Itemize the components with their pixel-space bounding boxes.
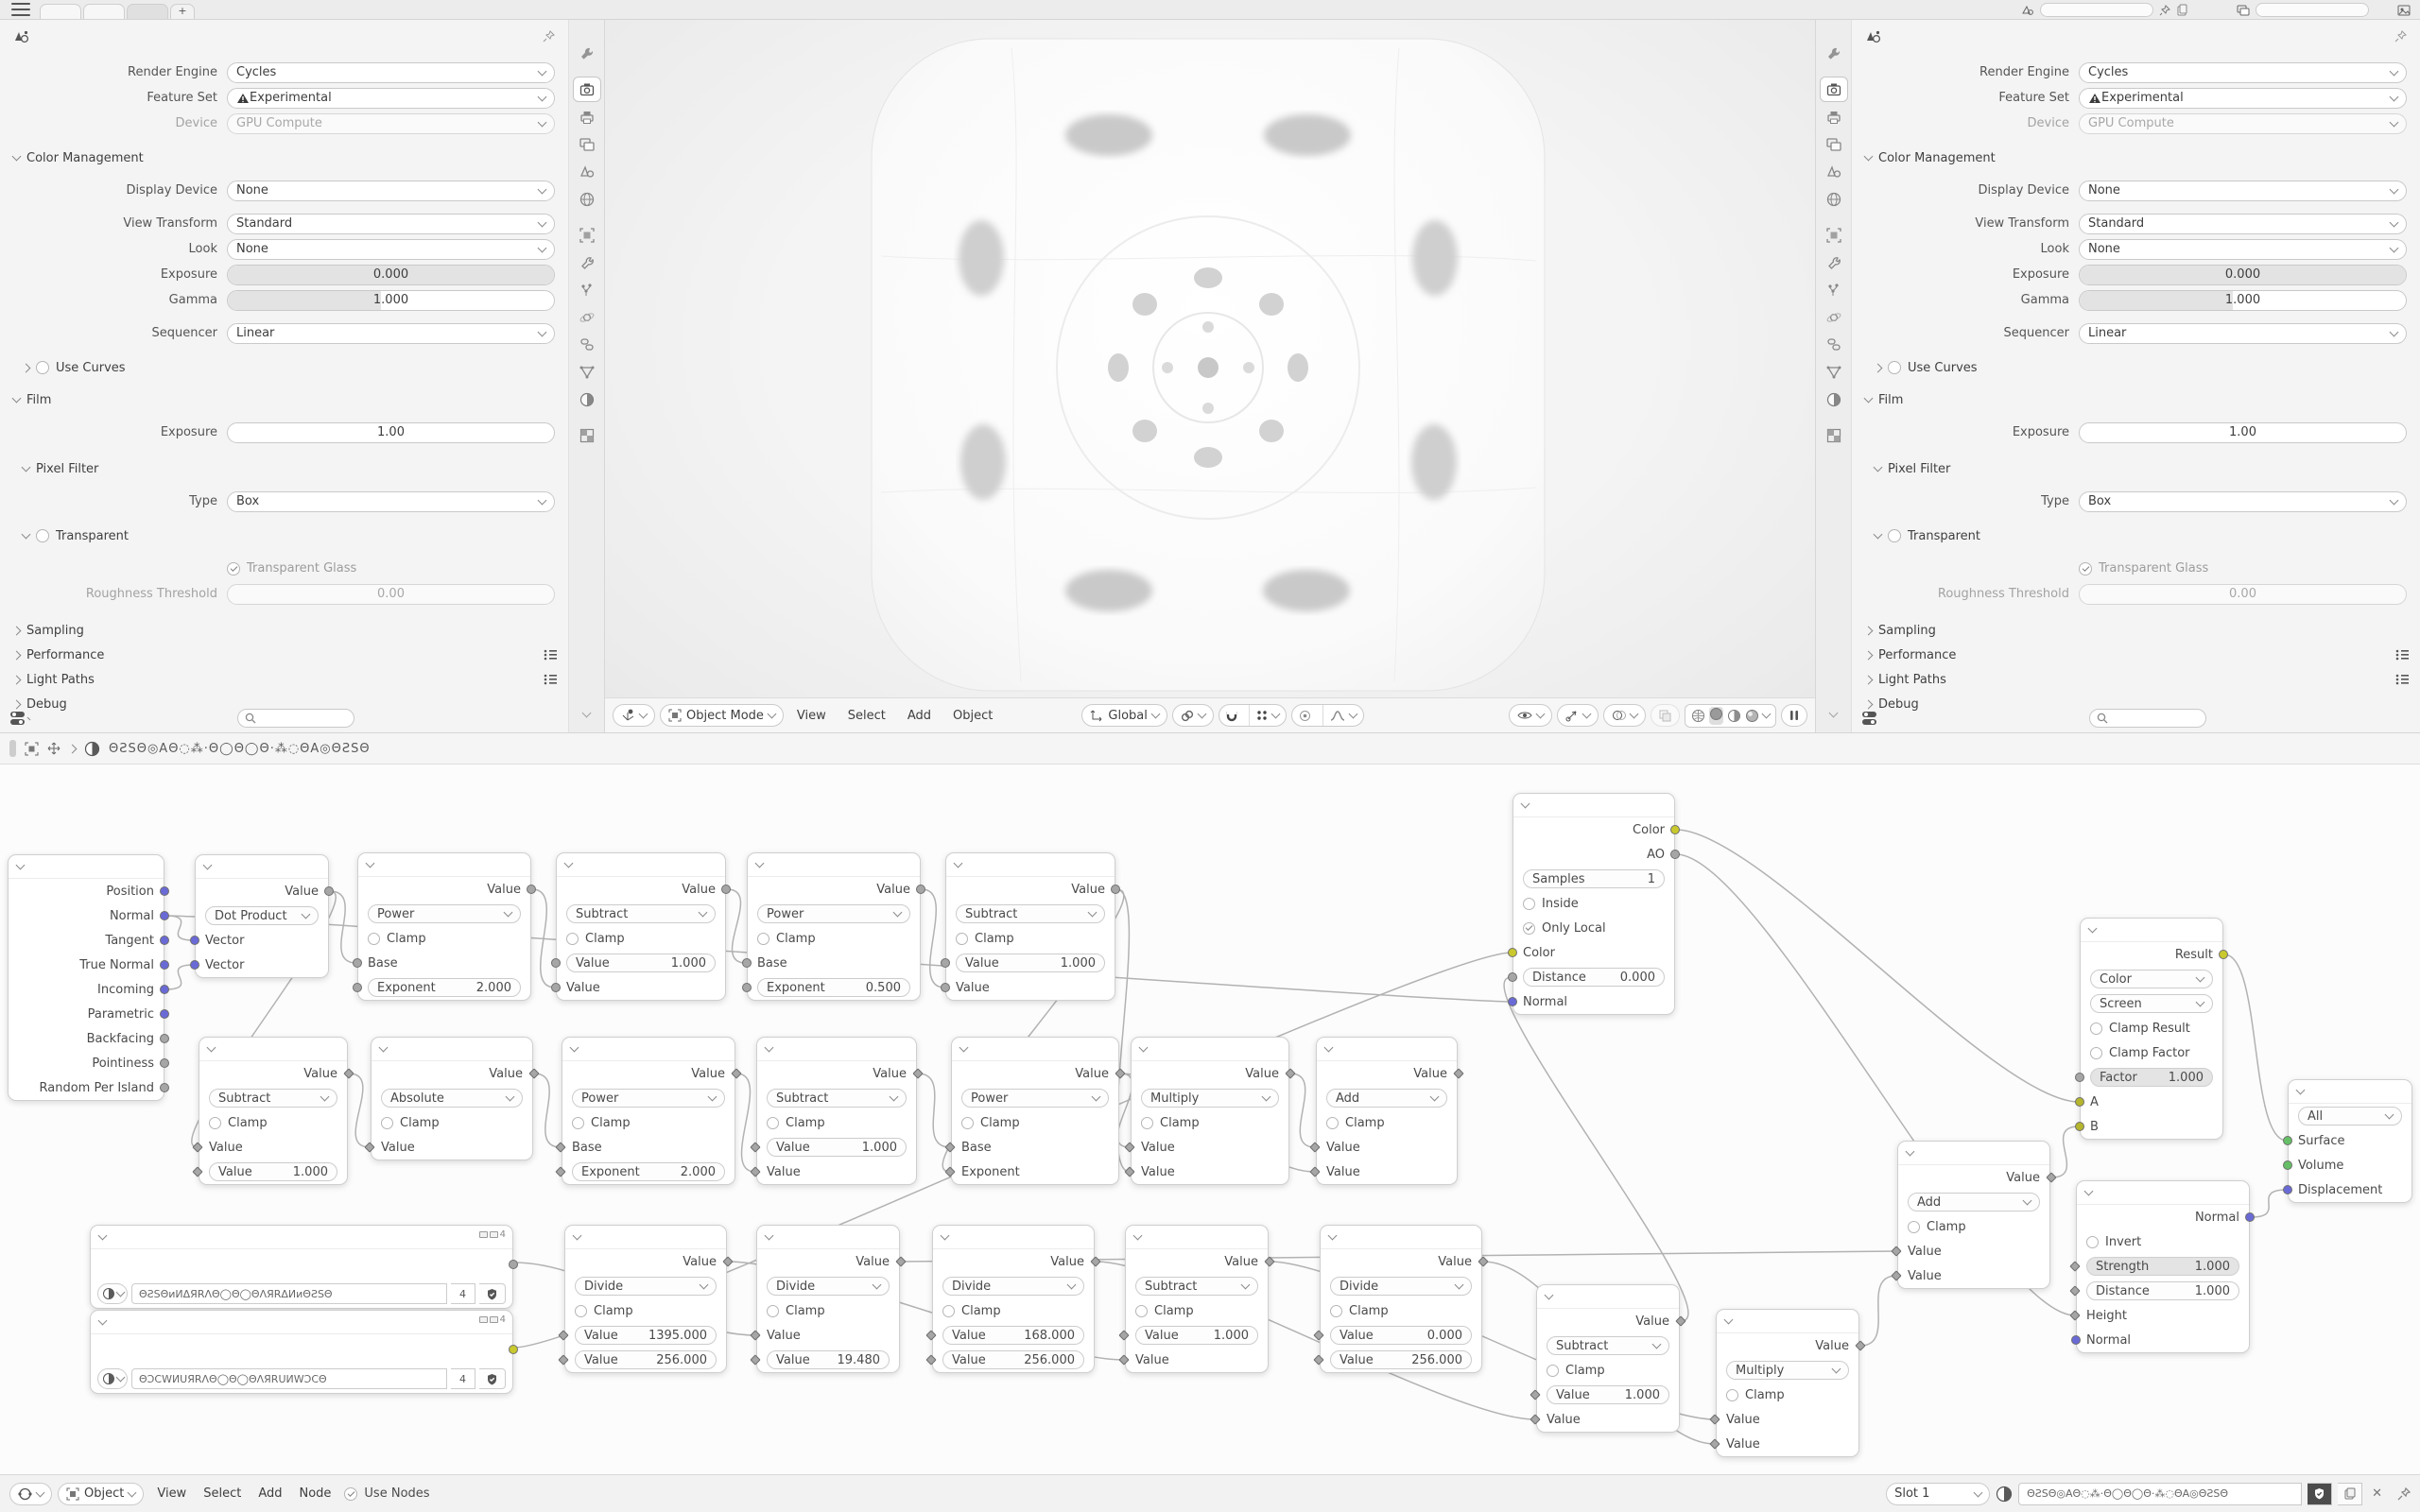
socket[interactable]: [941, 958, 950, 968]
look-select[interactable]: None: [2079, 239, 2407, 260]
filter-type-select[interactable]: Box: [2079, 491, 2407, 512]
collapse-icon[interactable]: [1545, 1291, 1554, 1300]
proportional-editing-toggle[interactable]: [1291, 704, 1364, 727]
sequencer-select[interactable]: Linear: [227, 323, 555, 344]
node-outn[interactable]: AllSurfaceVolumeDisplacement: [2288, 1079, 2412, 1203]
node-dot[interactable]: ValueDot ProductVectorVector: [195, 854, 329, 978]
node-pow4[interactable]: ValuePowerClampBaseExponent: [951, 1037, 1119, 1185]
node-mix[interactable]: ResultColorScreenClamp ResultClamp Facto…: [2080, 918, 2223, 1140]
operation-select[interactable]: Divide: [1330, 1277, 1472, 1296]
properties-tab-texture-icon[interactable]: [1820, 422, 1848, 448]
collapse-icon[interactable]: [2296, 1086, 2306, 1095]
properties-tab-modifiers-icon[interactable]: [1820, 249, 1848, 275]
image-browse-button[interactable]: [97, 1368, 128, 1389]
region-options-icon[interactable]: [1820, 701, 1848, 727]
fake-user-button[interactable]: [479, 1368, 506, 1389]
operation-select[interactable]: Absolute: [381, 1089, 523, 1108]
socket[interactable]: [190, 960, 199, 970]
operation-select[interactable]: Subtract: [1135, 1277, 1258, 1296]
checkbox[interactable]: [1523, 898, 1535, 910]
socket[interactable]: [160, 911, 169, 920]
checkbox[interactable]: [1726, 1389, 1738, 1401]
socket[interactable]: [527, 885, 536, 894]
collapse-icon[interactable]: [564, 859, 574, 868]
collapse-icon[interactable]: [1139, 1043, 1149, 1053]
feature-set-select[interactable]: Experimental: [227, 88, 555, 109]
filter-icon[interactable]: [1861, 710, 1884, 727]
value-field[interactable]: Value1.000: [1135, 1326, 1258, 1345]
properties-tab-scene-icon[interactable]: [1820, 159, 1848, 184]
fake-user-button[interactable]: [2308, 1483, 2332, 1505]
node-bump[interactable]: NormalInvertStrength1.000Distance1.000He…: [2076, 1180, 2250, 1353]
checkbox[interactable]: [961, 1117, 974, 1129]
filter-type-select[interactable]: Box: [227, 491, 555, 512]
node-sub6[interactable]: ValueSubtractClampValue1.000Value: [1536, 1284, 1680, 1433]
user-count[interactable]: 4: [451, 1283, 475, 1304]
collapse-icon[interactable]: [1521, 799, 1530, 809]
operation-select[interactable]: Power: [961, 1089, 1109, 1108]
section-film[interactable]: Film: [0, 387, 568, 412]
section-performance[interactable]: Performance: [1852, 643, 2420, 667]
section-transparent[interactable]: Transparent: [0, 524, 568, 548]
menu-node[interactable]: Node: [291, 1486, 338, 1501]
value-field[interactable]: Strength1.000: [2086, 1257, 2239, 1276]
value-field[interactable]: Exponent2.000: [368, 978, 521, 997]
node-abs1[interactable]: ValueAbsoluteClampValue: [371, 1037, 533, 1160]
gamma-slider[interactable]: 1.000: [2079, 290, 2407, 311]
scene-selector[interactable]: [2040, 3, 2153, 17]
exposure-slider[interactable]: 0.000: [227, 265, 555, 285]
section-sampling[interactable]: Sampling: [1852, 618, 2420, 643]
value-field[interactable]: Exponent2.000: [572, 1162, 725, 1181]
node-mult2[interactable]: ValueMultiplyClampValueValue: [1716, 1309, 1859, 1457]
image-name-field[interactable]: ΘƧSΘͷͶΔЯRΛΘ◯Θ◯ΘΛЯRΔͶͷΘƧSΘ: [131, 1283, 447, 1304]
collapse-icon[interactable]: [16, 861, 26, 870]
slot-select[interactable]: Slot 1: [1886, 1483, 1990, 1505]
socket[interactable]: [2075, 1097, 2084, 1107]
collapse-icon[interactable]: [1133, 1231, 1143, 1241]
checkbox[interactable]: [2090, 1022, 2102, 1035]
viewport-3d[interactable]: Object Mode View Select Add Object Globa…: [605, 20, 1815, 732]
snap-target-button[interactable]: [1172, 704, 1214, 727]
checkbox[interactable]: [566, 933, 579, 945]
menu-view[interactable]: View: [788, 709, 835, 723]
shader-type-select[interactable]: Object: [58, 1483, 144, 1505]
socket[interactable]: [190, 936, 199, 945]
node-pow1[interactable]: ValuePowerClampBaseExponent2.000: [357, 852, 531, 1001]
properties-tab-render-icon[interactable]: [1820, 77, 1848, 102]
properties-tab-physics-icon[interactable]: [573, 304, 601, 330]
operation-select[interactable]: Subtract: [767, 1089, 907, 1108]
value-field[interactable]: Value1.000: [209, 1162, 337, 1181]
roughness-threshold-field[interactable]: 0.00: [227, 584, 555, 605]
collapse-icon[interactable]: [203, 861, 213, 870]
socket[interactable]: [353, 983, 362, 992]
socket[interactable]: [160, 1009, 169, 1019]
overlays-button[interactable]: [1603, 704, 1646, 727]
xray-toggle[interactable]: [1651, 704, 1680, 727]
socket[interactable]: [1508, 997, 1517, 1006]
checkbox[interactable]: [1908, 1221, 1920, 1233]
render-result-icon[interactable]: [2397, 5, 2411, 16]
checkbox[interactable]: [381, 1117, 393, 1129]
socket[interactable]: [160, 960, 169, 970]
gamma-slider[interactable]: 1.000: [227, 290, 555, 311]
menu-icon[interactable]: [11, 3, 30, 16]
checkbox[interactable]: [767, 1117, 779, 1129]
object-icon: [66, 1487, 79, 1501]
socket[interactable]: [2283, 1160, 2292, 1170]
socket[interactable]: [2071, 1335, 2081, 1345]
use-nodes-checkbox[interactable]: Use Nodes: [344, 1486, 429, 1501]
transparent-glass-checkbox[interactable]: Transparent Glass: [227, 561, 356, 576]
roughness-threshold-field[interactable]: 0.00: [2079, 584, 2407, 605]
operation-select[interactable]: All: [2298, 1107, 2402, 1125]
socket[interactable]: [742, 983, 752, 992]
checkbox[interactable]: [2090, 1047, 2102, 1059]
properties-tab-material-icon[interactable]: [1820, 387, 1848, 412]
checkbox[interactable]: [209, 1117, 221, 1129]
mode-select[interactable]: Object Mode: [660, 704, 784, 727]
value-field[interactable]: Exponent0.500: [757, 978, 910, 997]
region-handle[interactable]: [9, 740, 16, 757]
operation-select[interactable]: Dot Product: [205, 906, 319, 925]
checkbox[interactable]: [1135, 1305, 1148, 1317]
region-options-icon[interactable]: [573, 701, 601, 727]
section-light-paths[interactable]: Light Paths: [1852, 667, 2420, 692]
workspace-tab[interactable]: [40, 4, 81, 19]
operation-select[interactable]: Subtract: [956, 904, 1105, 923]
socket[interactable]: [2283, 1185, 2292, 1194]
pin-icon[interactable]: [2394, 30, 2407, 43]
socket[interactable]: [2075, 1073, 2084, 1082]
collapse-icon[interactable]: [1324, 1043, 1334, 1053]
operation-select[interactable]: Screen: [2090, 994, 2213, 1013]
checkbox[interactable]: [942, 1305, 955, 1317]
collapse-icon[interactable]: [765, 1231, 774, 1241]
checkbox[interactable]: [572, 1117, 584, 1129]
checkbox[interactable]: [1547, 1365, 1559, 1377]
transparent-glass-checkbox[interactable]: Transparent Glass: [2079, 561, 2208, 576]
properties-tab-particles-icon[interactable]: [573, 277, 601, 302]
properties-tab-world-icon[interactable]: [1820, 186, 1848, 212]
value-field[interactable]: Value1.000: [767, 1138, 907, 1157]
shading-mode-switch[interactable]: [1685, 704, 1776, 728]
section-pixel-filter[interactable]: Pixel Filter: [0, 456, 568, 481]
collapse-icon[interactable]: [573, 1231, 582, 1241]
film-exposure-field[interactable]: 1.00: [227, 422, 555, 443]
node-div3[interactable]: ValueDivideClampValue168.000Value256.000: [932, 1225, 1095, 1373]
view-transform-select[interactable]: Standard: [2079, 214, 2407, 234]
view-transform-select[interactable]: Standard: [227, 214, 555, 234]
checkbox[interactable]: [1326, 1117, 1339, 1129]
socket[interactable]: [324, 886, 334, 896]
render-engine-select[interactable]: Cycles: [227, 62, 555, 83]
value-field[interactable]: Value256.000: [1330, 1350, 1472, 1369]
socket[interactable]: [2245, 1212, 2255, 1222]
operation-select[interactable]: Subtract: [1547, 1336, 1669, 1355]
collapse-icon[interactable]: [1724, 1315, 1734, 1325]
fake-user-button[interactable]: [479, 1283, 506, 1304]
collapse-icon[interactable]: [1906, 1147, 1915, 1157]
operation-select[interactable]: Multiply: [1141, 1089, 1279, 1108]
add-workspace-button[interactable]: +: [170, 4, 195, 19]
value-field[interactable]: Value1.000: [956, 954, 1105, 972]
collapse-icon[interactable]: [954, 859, 963, 868]
collapse-icon[interactable]: [755, 859, 765, 868]
transparent-checkbox[interactable]: [36, 529, 49, 542]
pause-button[interactable]: [1781, 704, 1807, 727]
node-geometry[interactable]: PositionNormalTangentTrue NormalIncoming…: [8, 854, 164, 1101]
node-sub5[interactable]: ValueSubtractClampValue1.000Value: [1125, 1225, 1269, 1373]
operation-select[interactable]: Add: [1908, 1193, 2040, 1211]
socket[interactable]: [509, 1260, 518, 1269]
section-use-curves[interactable]: Use Curves: [0, 355, 568, 380]
properties-tab-tool-icon[interactable]: [573, 41, 601, 66]
value-field[interactable]: Value1.000: [566, 954, 716, 972]
socket[interactable]: [1508, 972, 1517, 982]
film-exposure-field[interactable]: 1.00: [2079, 422, 2407, 443]
properties-tab-output-icon[interactable]: [573, 104, 601, 129]
orientation-select[interactable]: Global: [1081, 704, 1167, 727]
socket[interactable]: [1670, 825, 1680, 834]
material-name-field[interactable]: ΘƧSΘ◎AΘ◌⁂·Θ◯Θ◯Θ·⁂◌ΘA◎ΘƧSΘ: [2018, 1483, 2302, 1505]
properties-tab-physics-icon[interactable]: [1820, 304, 1848, 330]
operation-select[interactable]: Power: [572, 1089, 725, 1108]
value-field[interactable]: Samples1: [1523, 869, 1665, 888]
section-sampling[interactable]: Sampling: [0, 618, 568, 643]
workspace-tab[interactable]: [83, 4, 125, 19]
pin-icon[interactable]: [543, 30, 555, 43]
properties-tab-tool-icon[interactable]: [1820, 41, 1848, 66]
node-sub4[interactable]: ValueSubtractClampValue1.000Value: [756, 1037, 917, 1185]
operation-select[interactable]: Add: [1326, 1089, 1447, 1108]
object-mode-icon: [668, 709, 682, 722]
operation-select[interactable]: Divide: [942, 1277, 1084, 1296]
socket[interactable]: [160, 936, 169, 945]
value-field[interactable]: Value256.000: [942, 1350, 1084, 1369]
menu-select[interactable]: Select: [196, 1486, 249, 1501]
node-div4[interactable]: ValueDivideClampValue0.000Value256.000: [1320, 1225, 1482, 1373]
collapse-icon[interactable]: [2084, 1187, 2094, 1196]
socket[interactable]: [160, 1034, 169, 1043]
use-curves-checkbox[interactable]: [1888, 361, 1901, 374]
section-use-curves[interactable]: Use Curves: [1852, 355, 2420, 380]
collapse-icon[interactable]: [959, 1043, 969, 1053]
checkbox[interactable]: [1330, 1305, 1342, 1317]
node-div2[interactable]: ValueDivideClampValueValue19.480: [756, 1225, 900, 1373]
properties-tab-view-layer-icon[interactable]: [1820, 131, 1848, 157]
collapse-icon[interactable]: [1328, 1231, 1338, 1241]
socket[interactable]: [160, 886, 169, 896]
value-field[interactable]: Distance0.000: [1523, 968, 1665, 987]
properties-tab-data-icon[interactable]: [1820, 359, 1848, 385]
properties-tab-data-icon[interactable]: [573, 359, 601, 385]
pin-icon[interactable]: [2397, 1487, 2411, 1501]
checkbox[interactable]: [1141, 1117, 1153, 1129]
value-field[interactable]: Factor1.000: [2090, 1068, 2213, 1087]
exposure-slider[interactable]: 0.000: [2079, 265, 2407, 285]
value-field[interactable]: Value1.000: [1547, 1385, 1669, 1404]
view-layer-selector[interactable]: [2256, 3, 2369, 17]
socket[interactable]: [721, 885, 731, 894]
checkbox[interactable]: [368, 933, 380, 945]
image-browse-button[interactable]: [97, 1283, 128, 1304]
value-field[interactable]: Value168.000: [942, 1326, 1084, 1345]
value-field[interactable]: Distance1.000: [2086, 1281, 2239, 1300]
menu-add[interactable]: Add: [251, 1486, 289, 1501]
node-img1[interactable]: 4ΘƧSΘͷͶΔЯRΛΘ◯Θ◯ΘΛЯRΔͶͷΘƧSΘ4: [90, 1225, 513, 1309]
section-pixel-filter[interactable]: Pixel Filter: [1852, 456, 2420, 481]
display-device-select[interactable]: None: [2079, 180, 2407, 201]
socket[interactable]: [353, 958, 362, 968]
gizmo-button[interactable]: [1557, 704, 1599, 727]
socket[interactable]: [916, 885, 925, 894]
checkbox[interactable]: [767, 1305, 779, 1317]
node-ao[interactable]: ColorAOSamples1InsideOnly LocalColorDist…: [1512, 793, 1675, 1015]
properties-tab-constraints-icon[interactable]: [1820, 332, 1848, 357]
output-label: Value: [1075, 1067, 1109, 1081]
socket[interactable]: [1111, 885, 1120, 894]
socket[interactable]: [551, 983, 561, 992]
properties-tab-particles-icon[interactable]: [1820, 277, 1848, 302]
socket[interactable]: [160, 985, 169, 994]
operation-select[interactable]: Color: [2090, 970, 2213, 988]
node-sub2[interactable]: ValueSubtractClampValue1.000Value: [945, 852, 1115, 1001]
properties-tab-constraints-icon[interactable]: [573, 332, 601, 357]
node-sub3[interactable]: ValueSubtractClampValueValue1.000: [199, 1037, 348, 1185]
collapse-icon[interactable]: [765, 1043, 774, 1053]
input-label: Surface: [2298, 1134, 2345, 1148]
socket[interactable]: [2219, 950, 2228, 959]
menu-object[interactable]: Object: [944, 709, 1001, 723]
section-transparent[interactable]: Transparent: [1852, 524, 2420, 548]
user-count[interactable]: 4: [451, 1368, 475, 1389]
editor-type-button[interactable]: [613, 704, 655, 727]
node-div1[interactable]: ValueDivideClampValue1395.000Value256.00…: [564, 1225, 727, 1373]
node-add1[interactable]: ValueAddClampValueValue: [1316, 1037, 1458, 1185]
device-select[interactable]: GPU Compute: [227, 113, 555, 134]
image-name-field[interactable]: ΘƆCWͶUЯRΛΘ◯Θ◯ΘΛЯRUͶWƆCΘ: [131, 1368, 447, 1389]
socket[interactable]: [941, 983, 950, 992]
transparent-checkbox[interactable]: [1888, 529, 1901, 542]
socket[interactable]: [1508, 948, 1517, 957]
menu-select[interactable]: Select: [839, 709, 894, 723]
properties-tab-material-icon[interactable]: [573, 387, 601, 412]
socket[interactable]: [1670, 850, 1680, 859]
section-color-management[interactable]: Color Management: [1852, 146, 2420, 170]
properties-tab-render-icon[interactable]: [573, 77, 601, 102]
collapse-icon[interactable]: [570, 1043, 579, 1053]
value-field[interactable]: Value0.000: [1330, 1326, 1472, 1345]
operation-select[interactable]: Multiply: [1726, 1361, 1849, 1380]
collapse-icon[interactable]: [379, 1043, 389, 1053]
render-engine-select[interactable]: Cycles: [2079, 62, 2407, 83]
checkbox[interactable]: [575, 1305, 587, 1317]
properties-tab-modifiers-icon[interactable]: [573, 249, 601, 275]
socket[interactable]: [2075, 1122, 2084, 1131]
workspace-tab-active[interactable]: [127, 4, 168, 19]
operation-select[interactable]: Power: [757, 904, 910, 923]
socket[interactable]: [2283, 1136, 2292, 1145]
socket[interactable]: [160, 1058, 169, 1068]
section-color-management[interactable]: Color Management: [0, 146, 568, 170]
node-canvas[interactable]: PositionNormalTangentTrue NormalIncoming…: [0, 765, 2420, 1474]
properties-tab-texture-icon[interactable]: [573, 422, 601, 448]
checkbox[interactable]: [1523, 922, 1535, 935]
node-img2[interactable]: 4ΘƆCWͶUЯRΛΘ◯Θ◯ΘΛЯRUͶWƆCΘ4: [90, 1310, 513, 1394]
unlink-button[interactable]: ✕: [2368, 1486, 2386, 1501]
menu-add[interactable]: Add: [899, 709, 940, 723]
properties-tab-object-icon[interactable]: [573, 222, 601, 248]
snap-toggle[interactable]: [1219, 704, 1287, 727]
editor-type-button[interactable]: [9, 1483, 52, 1505]
look-select[interactable]: None: [227, 239, 555, 260]
node-mult1[interactable]: ValueMultiplyClampValueValue: [1131, 1037, 1289, 1185]
collapse-icon[interactable]: [366, 859, 375, 868]
collapse-icon[interactable]: [98, 1316, 108, 1326]
collapse-icon[interactable]: [2088, 924, 2098, 934]
use-curves-checkbox[interactable]: [36, 361, 49, 374]
operation-select[interactable]: Power: [368, 904, 521, 923]
feature-set-select[interactable]: Experimental: [2079, 88, 2407, 109]
node-editor-header: ΘƧSΘ◎AΘ◌⁂·Θ◯Θ◯Θ·⁂◌ΘA◎ΘƧSΘ: [0, 732, 2420, 765]
value-field[interactable]: Value19.480: [767, 1350, 890, 1369]
properties-tab-world-icon[interactable]: [573, 186, 601, 212]
socket[interactable]: [551, 958, 561, 968]
filter-icon[interactable]: [9, 710, 32, 727]
properties-tab-scene-icon[interactable]: [573, 159, 601, 184]
device-select[interactable]: GPU Compute: [2079, 113, 2407, 134]
node-addc[interactable]: ValueAddClampValueValue: [1897, 1141, 2050, 1289]
section-performance[interactable]: Performance: [0, 643, 568, 667]
search-input[interactable]: [2089, 709, 2206, 728]
properties-tab-output-icon[interactable]: [1820, 104, 1848, 129]
operation-select[interactable]: Subtract: [209, 1089, 337, 1108]
visibility-button[interactable]: [1509, 704, 1552, 727]
operation-select[interactable]: Subtract: [566, 904, 716, 923]
new-scene-icon[interactable]: [2176, 4, 2187, 16]
operation-select[interactable]: Divide: [575, 1277, 717, 1296]
menu-view[interactable]: View: [149, 1486, 194, 1501]
operation-select[interactable]: Divide: [767, 1277, 890, 1296]
properties-tab-object-icon[interactable]: [1820, 222, 1848, 248]
value-field[interactable]: Value1395.000: [575, 1326, 717, 1345]
collapse-icon[interactable]: [941, 1231, 950, 1241]
collapse-icon[interactable]: [98, 1231, 108, 1241]
socket[interactable]: [160, 1083, 169, 1092]
checkbox[interactable]: [2086, 1236, 2099, 1248]
section-film[interactable]: Film: [1852, 387, 2420, 412]
roughness-threshold-label: Roughness Threshold: [0, 587, 227, 601]
node-pow3[interactable]: ValuePowerClampBaseExponent2.000: [562, 1037, 735, 1185]
collapse-icon[interactable]: [207, 1043, 216, 1053]
checkbox[interactable]: [757, 933, 769, 945]
properties-tab-view-layer-icon[interactable]: [573, 131, 601, 157]
display-device-select[interactable]: None: [227, 180, 555, 201]
node-sub1[interactable]: ValueSubtractClampValue1.000Value: [556, 852, 726, 1001]
node-pow2[interactable]: ValuePowerClampBaseExponent0.500: [747, 852, 921, 1001]
pin-icon[interactable]: [2159, 5, 2170, 16]
sequencer-select[interactable]: Linear: [2079, 323, 2407, 344]
search-input[interactable]: [237, 709, 354, 728]
socket[interactable]: [742, 958, 752, 968]
checkbox[interactable]: [956, 933, 968, 945]
value-field[interactable]: Value256.000: [575, 1350, 717, 1369]
socket[interactable]: [509, 1345, 518, 1354]
copy-material-button[interactable]: [2338, 1483, 2362, 1505]
section-light-paths[interactable]: Light Paths: [0, 667, 568, 692]
